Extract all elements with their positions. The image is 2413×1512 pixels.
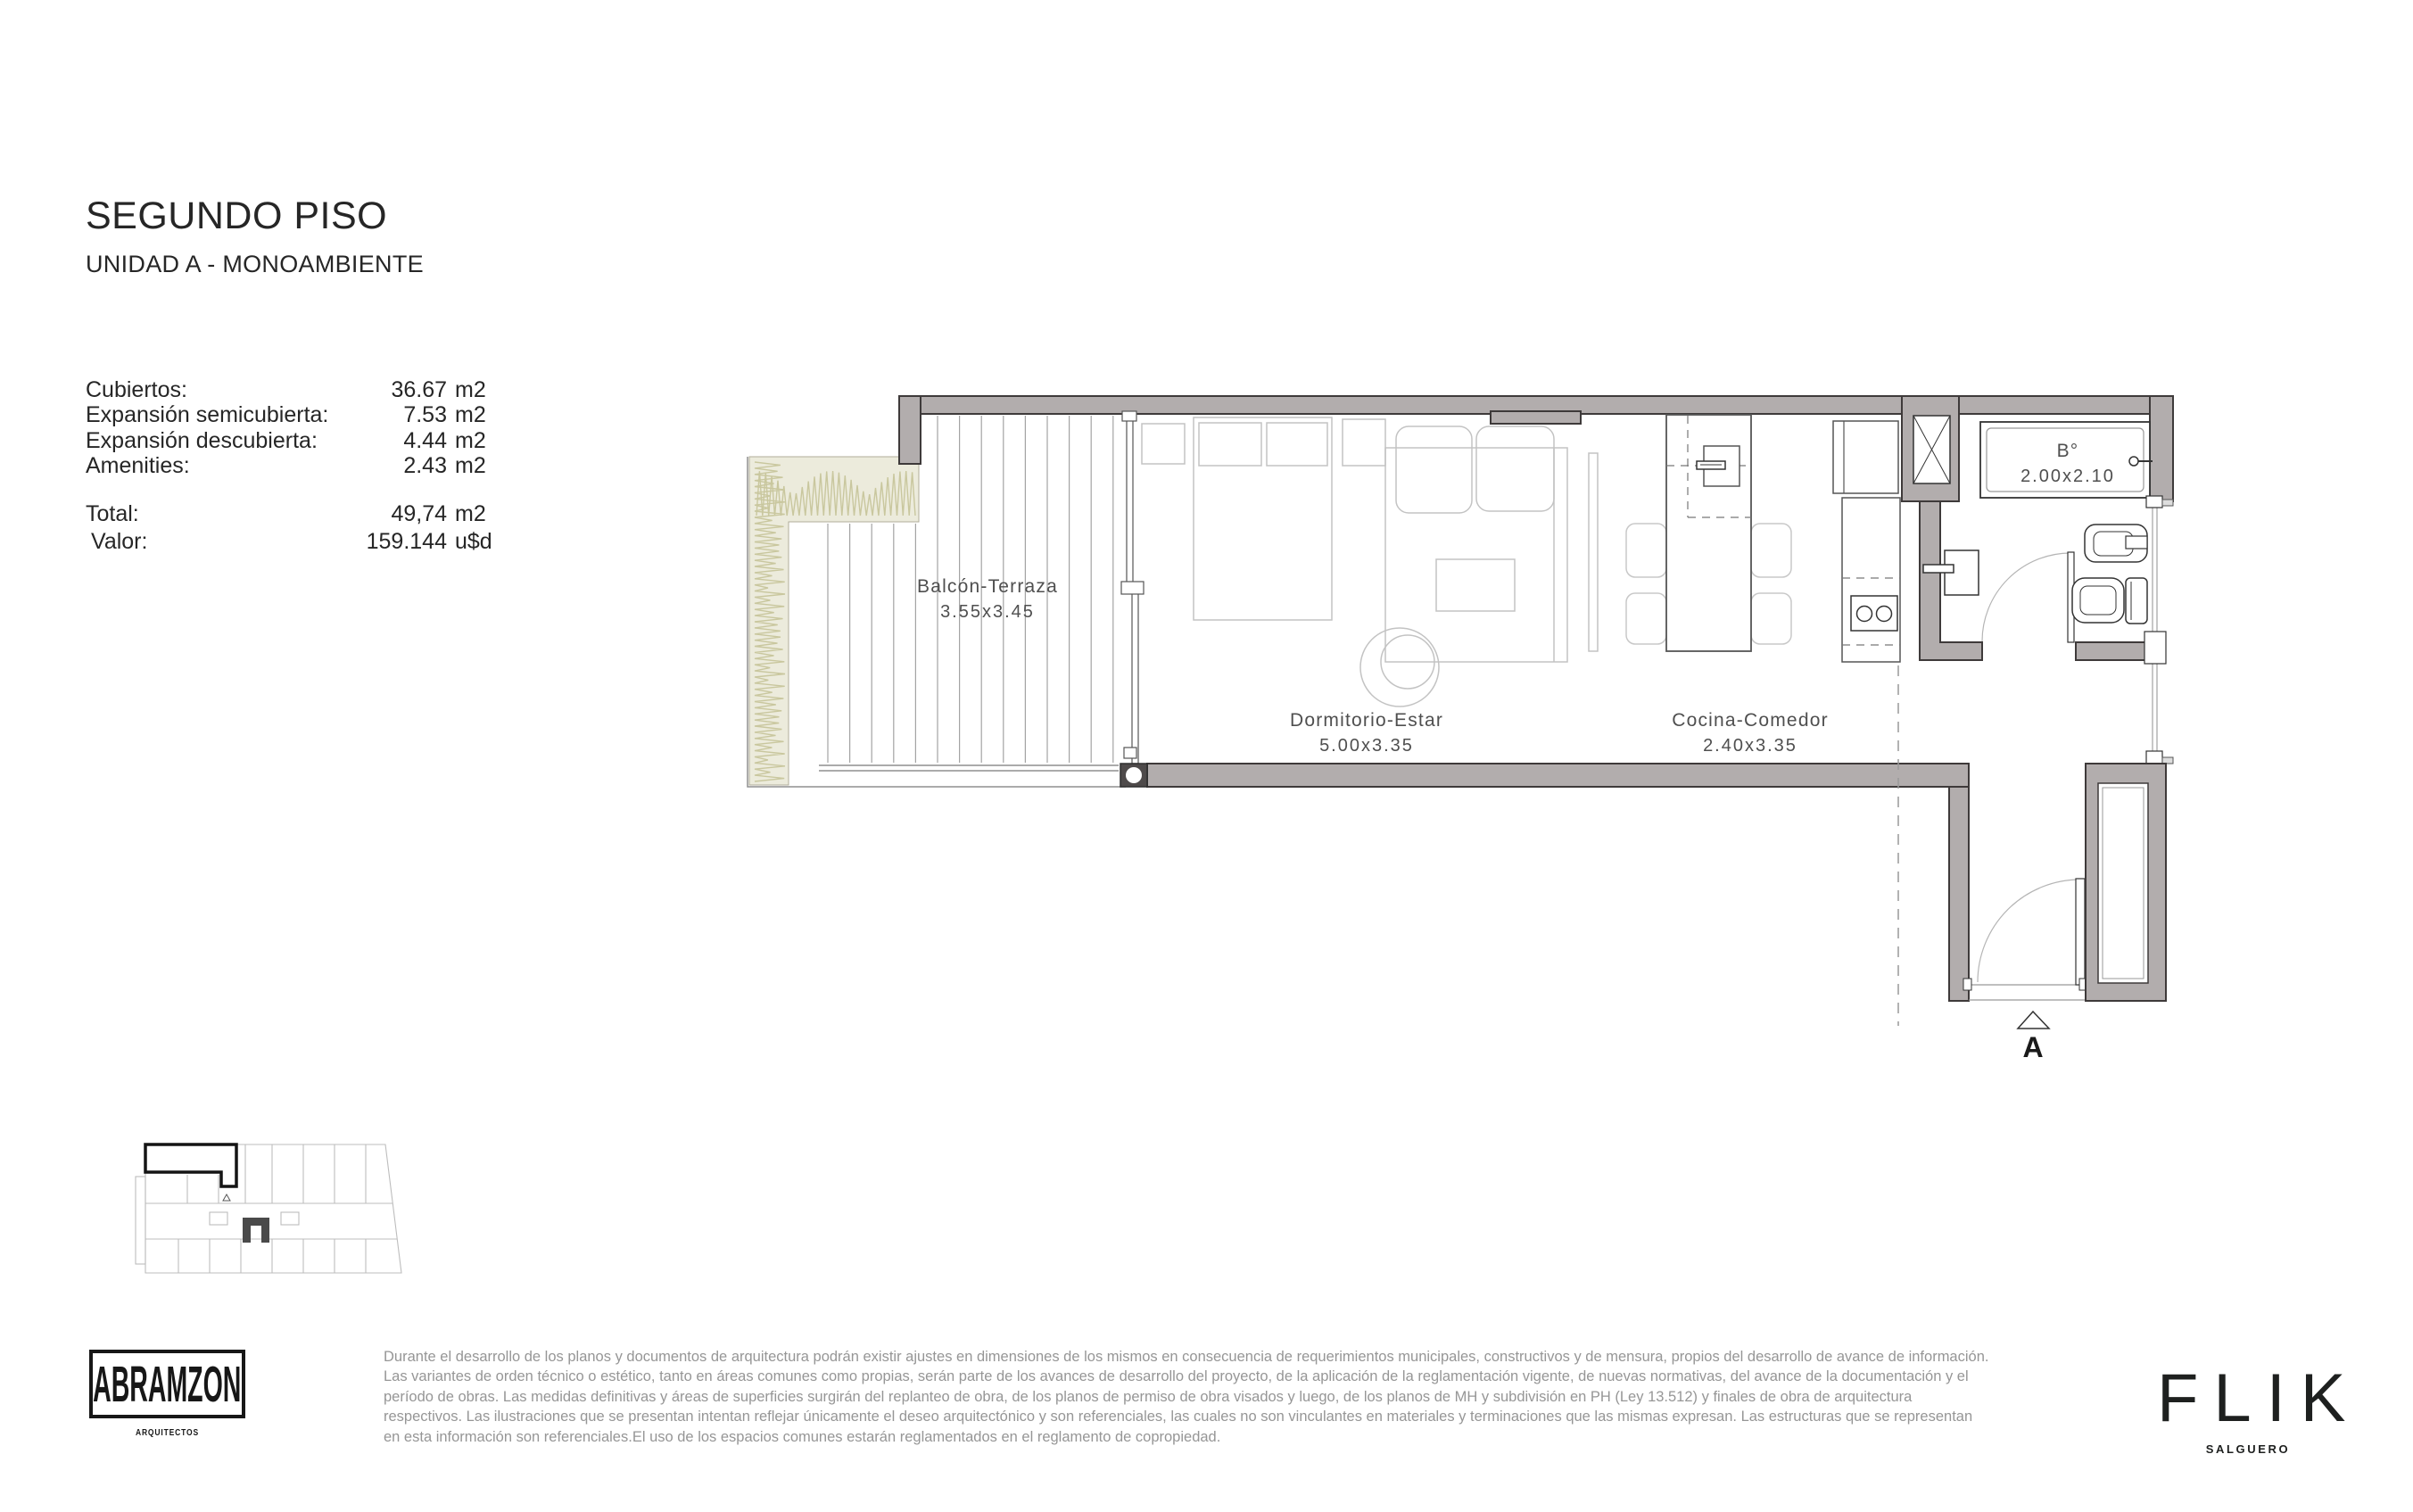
fridge [1833,421,1898,493]
table-row: Expansión descubierta: 4.44 m2 [86,428,505,454]
row-value: 7.53 [353,402,447,428]
sofa-cushion [1396,426,1472,513]
room-dims-cocina: 2.40x3.35 [1703,736,1797,756]
row-unit: m2 [447,428,496,454]
area-table: Cubiertos: 36.67 m2 Expansión semicubier… [86,377,505,556]
architect-name: ABRAMZON [93,1355,241,1414]
wall-bath-right [2150,396,2173,501]
row-value: 2.43 [353,453,447,479]
row-label: Expansión descubierta: [86,428,353,454]
cooktop [1851,596,1897,631]
key-plan-svg [125,1135,410,1291]
row-label: Amenities: [86,453,353,479]
table-row: Cubiertos: 36.67 m2 [86,377,505,403]
toilet [2072,578,2147,624]
row-unit: m2 [447,377,496,403]
disclaimer-line: período de obras. Las medidas definitiva… [384,1387,2043,1407]
architect-tagline: ARQUITECTOS [101,1428,234,1438]
kitchen [1626,415,1900,662]
section-letter: A [2022,1031,2043,1062]
sofa-cushion [1476,426,1554,511]
row-unit: m2 [447,402,496,428]
section-arrow-icon [2018,1012,2049,1029]
page-subtitle: UNIDAD A - MONOAMBIENTE [86,251,424,278]
balcony: Balcón-Terraza 3.55x3.45 [748,416,1126,787]
area-summary: Total: 49,74 m2 Valor: 159.144 u$d [86,500,505,556]
vent-shaft [1913,416,1950,483]
room-label-cocina: Cocina-Comedor [1672,710,1829,731]
brand-logo: FLIK SALGUERO [2150,1359,2346,1456]
key-plan-building [136,1144,401,1273]
row-unit: u$d [447,529,496,555]
plan-sheet-page: { "header": { "title": "SEGUNDO PISO", "… [0,0,2413,1512]
room-dims-dormitorio: 5.00x3.35 [1319,736,1414,756]
vanity-faucet [1923,565,1954,573]
room-dims-balcony: 3.55x3.45 [940,602,1035,622]
disclaimer-line: Las variantes de orden técnico o estétic… [384,1367,2043,1386]
pillow [1267,423,1327,466]
wall-bottom [1147,764,1969,787]
entry-door-arc [1978,880,2080,982]
table-row: Amenities: 2.43 m2 [86,454,505,480]
disclaimer-line: Durante el desarrollo de los planos y do… [384,1347,2043,1367]
row-unit: m2 [447,501,496,527]
architect-logo: ABRAMZON ARQUITECTOS [89,1350,245,1438]
row-value: 36.67 [353,377,447,403]
bathroom-door-arc [1982,553,2070,641]
row-label: Cubiertos: [86,377,353,403]
bed [1194,417,1332,620]
entry [1963,879,2087,1000]
row-label: Valor: [86,529,353,555]
row-value: 4.44 [353,428,447,454]
disclaimer-text: Durante el desarrollo de los planos y do… [384,1347,2043,1447]
row-label: Expansión semicubierta: [86,402,353,428]
bedroom-furniture [1142,417,1598,706]
disclaimer-line: respectivos. Las ilustraciones que se pr… [384,1407,2043,1426]
bidet [2085,525,2147,562]
room-label-bano: B° [2057,441,2079,461]
architect-logo-box: ABRAMZON [89,1350,245,1418]
row-label: Total: [86,501,353,527]
row-value: 49,74 [353,501,447,527]
row-unit: m2 [447,453,496,479]
floor-plan-svg: Balcón-Terraza 3.55x3.45 [731,384,2212,1062]
nightstand [1343,419,1385,466]
section-marker: A [2018,1012,2049,1062]
wall-top-notch [1491,411,1581,424]
sheet-header: SEGUNDO PISO UNIDAD A - MONOAMBIENTE [86,194,424,278]
wall-top-left-stub [899,396,921,464]
entry-door-leaf [2076,879,2085,985]
table-row: Expansión semicubierta: 7.53 m2 [86,403,505,429]
sliding-door [1121,411,1144,764]
entry-shaft [2086,764,2166,1001]
page-title: SEGUNDO PISO [86,194,424,238]
room-dims-bano: 2.00x2.10 [2020,467,2115,486]
pillow [1199,423,1261,466]
brand-tagline: SALGUERO [2150,1442,2346,1456]
column [1120,764,1147,787]
brand-name: FLIK [2157,1359,2346,1437]
price-row: Valor: 159.144 u$d [86,528,505,556]
row-value: 159.144 [353,529,447,555]
nightstand [1142,424,1185,464]
total-row: Total: 49,74 m2 [86,500,505,528]
wall-bath-bottom-right [2076,642,2150,660]
coffee-table [1436,559,1515,611]
room-label-balcony: Balcón-Terraza [917,576,1058,597]
window-line [2144,496,2173,764]
wall-corridor [1949,787,1969,1001]
kitchen-counter [1842,498,1900,662]
room-label-dormitorio: Dormitorio-Estar [1290,710,1443,731]
tv-rack [1589,453,1598,651]
disclaimer-line: en esta información son referenciales.El… [384,1427,2043,1447]
armchair [1360,628,1439,706]
